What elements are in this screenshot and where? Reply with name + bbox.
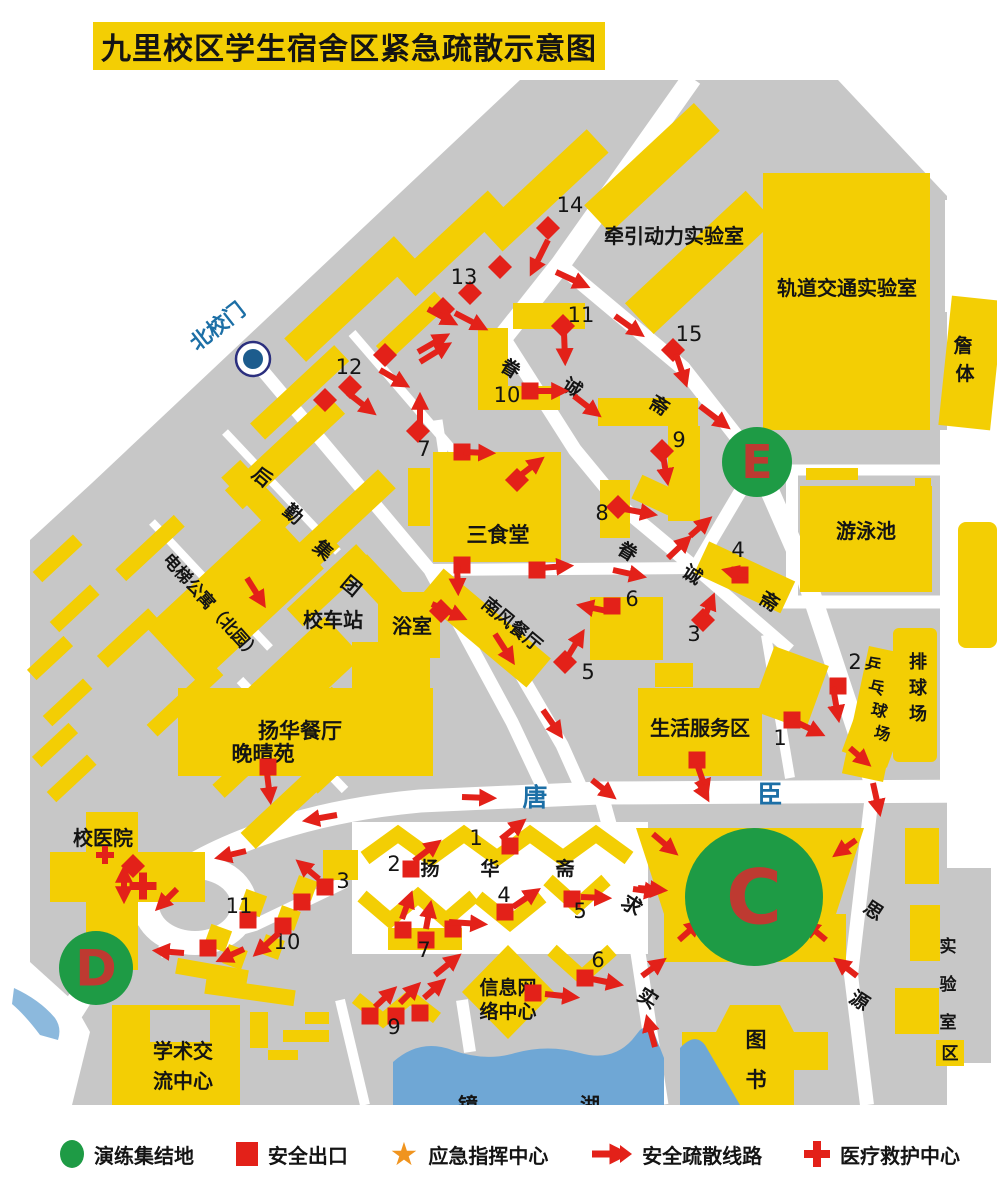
map-label: 三食堂: [467, 523, 530, 547]
map-label: 络中心: [479, 1000, 536, 1023]
exit-number: 11: [226, 894, 253, 918]
map-label: 斋: [554, 857, 575, 880]
map-label: 生活服务区: [650, 716, 750, 740]
medical-cross-icon: [804, 1141, 830, 1167]
route-arrow: [426, 907, 430, 929]
medical-cross: [96, 852, 114, 858]
exit-square: [395, 922, 412, 939]
exit-number: 5: [581, 660, 594, 684]
route-arrow: [267, 773, 270, 798]
exit-number: 7: [417, 437, 430, 461]
map-label: 验: [940, 974, 958, 995]
exit-number: 5: [573, 899, 586, 923]
map-label: 唐: [522, 783, 547, 812]
exit-number: 3: [687, 622, 700, 646]
medical-cross: [130, 882, 157, 890]
map-label: 华: [480, 857, 499, 880]
map-label: 场: [909, 704, 927, 725]
exit-square: [200, 940, 217, 957]
exit-number: 13: [451, 265, 478, 289]
exit-square: [525, 985, 542, 1002]
legend-label: 安全疏散线路: [642, 1140, 762, 1169]
legend-item-exit: 安全出口: [236, 1140, 348, 1169]
map-label: 牵引动力实验室: [604, 224, 744, 248]
route-arrow: [540, 566, 567, 568]
building-rail-lab: [763, 173, 930, 430]
map-label: 扬华餐厅: [258, 719, 342, 743]
map-label: 球: [909, 678, 928, 699]
exit-square: [403, 861, 420, 878]
exit-number: 4: [731, 538, 744, 562]
legend-item-assembly: 演练集结地: [60, 1140, 194, 1169]
map-label: 臣: [757, 780, 782, 809]
exit-number: 1: [469, 826, 482, 850]
campus-map: 牵引动力实验室轨道交通实验室游泳池三食堂南风餐厅浴室校车站扬华餐厅晚晴苑生活服务…: [0, 0, 997, 1105]
exit-number: 12: [336, 355, 363, 379]
exit-number: 8: [595, 501, 608, 525]
route-arrow: [159, 951, 184, 953]
map-label: 扬: [420, 857, 439, 880]
exit-number: 14: [557, 193, 584, 217]
north-gate-marker: [236, 342, 270, 376]
exit-number: 6: [625, 587, 638, 611]
exit-square: [317, 879, 334, 896]
map-label: 湖: [580, 1093, 600, 1105]
legend-item-medical: 医疗救护中心: [804, 1140, 960, 1169]
exit-number: 6: [591, 948, 604, 972]
exit-square: [412, 1005, 429, 1022]
exit-number: 1: [773, 726, 786, 750]
map-label: 学术交: [153, 1039, 213, 1063]
route-arrow: [462, 797, 490, 798]
route-arrow: [457, 566, 458, 589]
exit-number: 3: [336, 869, 349, 893]
map-label: 排: [909, 651, 927, 673]
map-label: 区: [942, 1044, 959, 1064]
route-arrow: [449, 922, 481, 924]
exit-number: 4: [497, 883, 510, 907]
exit-square: [294, 894, 311, 911]
map-label: 游泳池: [836, 519, 896, 543]
map-label: 詹: [953, 334, 972, 357]
route-arrow: [663, 455, 667, 479]
assembly-letter-C: C: [726, 853, 782, 942]
exit-number: 15: [676, 322, 703, 346]
legend-item-command: ★ 应急指挥中心: [390, 1140, 549, 1169]
assembly-letter-E: E: [741, 435, 772, 489]
map-label: 图: [746, 1028, 767, 1052]
route-arrow: [464, 452, 489, 453]
map-label: 室: [940, 1012, 957, 1033]
map-label: 书: [746, 1068, 767, 1092]
exit-square: [362, 1008, 379, 1025]
exit-square: [577, 970, 594, 987]
route-arrow: [564, 332, 565, 359]
route-arrow: [545, 994, 573, 997]
map-label: 镜: [458, 1093, 478, 1105]
legend-label: 演练集结地: [94, 1140, 194, 1169]
exit-number: 9: [672, 428, 685, 452]
evacuation-map-page: 牵引动力实验室轨道交通实验室游泳池三食堂南风餐厅浴室校车站扬华餐厅晚晴苑生活服务…: [0, 0, 997, 1200]
exit-number: 10: [494, 383, 521, 407]
route-arrow: [638, 888, 661, 890]
map-label: 轨道交通实验室: [777, 276, 917, 300]
exit-number: 11: [568, 303, 595, 327]
route-arrow: [581, 897, 605, 898]
legend: 演练集结地 安全出口 ★ 应急指挥中心 安全疏散线路 医疗救护中心: [60, 1128, 960, 1180]
command-star-icon: ★: [390, 1142, 419, 1166]
exit-number: 2: [848, 650, 861, 674]
legend-label: 安全出口: [268, 1140, 348, 1169]
assembly-letter-D: D: [75, 940, 117, 998]
map-label: 浴室: [392, 614, 432, 638]
legend-label: 应急指挥中心: [428, 1140, 548, 1169]
exit-number: 9: [387, 1015, 400, 1039]
map-label: 流中心: [153, 1069, 213, 1093]
legend-label: 医疗救护中心: [840, 1140, 960, 1169]
exit-number: 7: [417, 938, 430, 962]
route-arrow-icon: [590, 1143, 632, 1165]
map-label: 实: [940, 936, 957, 957]
map-label: 体: [955, 362, 975, 385]
assembly-circle-icon: [60, 1140, 84, 1168]
exit-number: 2: [387, 852, 400, 876]
exit-square: [522, 383, 539, 400]
academic-courtyard: [150, 1010, 210, 1042]
exit-square-icon: [236, 1142, 258, 1166]
legend-item-route: 安全疏散线路: [590, 1140, 762, 1169]
map-label: 校车站: [303, 608, 363, 632]
page-title: 九里校区学生宿舍区紧急疏散示意图: [93, 22, 605, 70]
